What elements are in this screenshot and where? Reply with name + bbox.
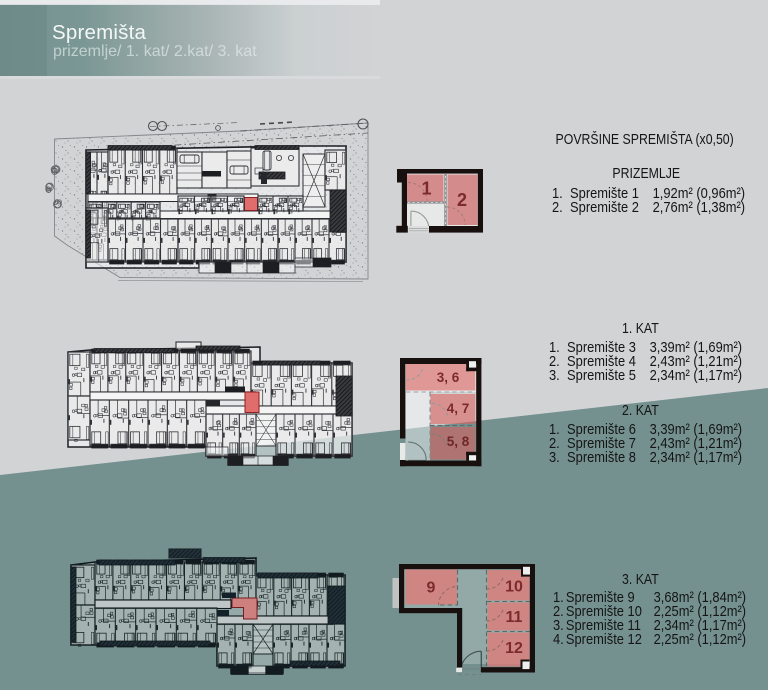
svg-text:3, 6: 3, 6 [437,370,460,385]
svg-text:5, 8: 5, 8 [447,434,470,449]
svg-text:11: 11 [506,609,523,626]
svg-text:1: 1 [421,179,431,199]
svg-text:2: 2 [457,190,467,210]
svg-text:4, 7: 4, 7 [447,401,470,416]
svg-text:12: 12 [505,640,523,657]
svg-text:9: 9 [427,580,436,597]
svg-text:10: 10 [505,579,523,596]
